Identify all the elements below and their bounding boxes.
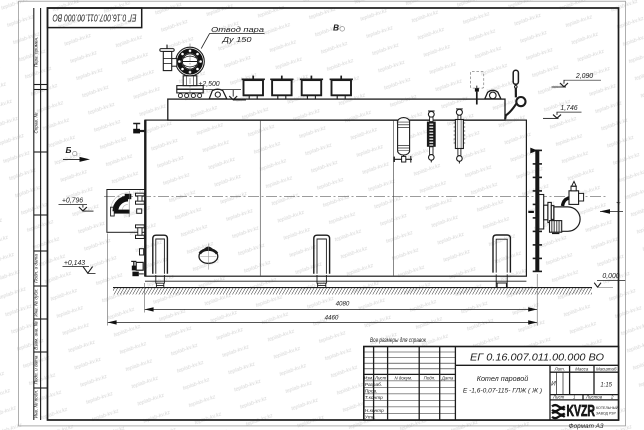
svg-text:В: В <box>333 22 339 32</box>
svg-text:1,746: 1,746 <box>560 105 577 112</box>
svg-text:Котел паровой: Котел паровой <box>477 374 529 383</box>
svg-text:Все размеры для справок: Все размеры для справок <box>370 338 427 344</box>
svg-text:Справ. №: Справ. № <box>34 113 39 134</box>
svg-text:1:15: 1:15 <box>600 383 612 389</box>
svg-text:Лист: Лист <box>552 395 565 400</box>
svg-text:ЕГ 0.16.007.011.00.000 ВО: ЕГ 0.16.007.011.00.000 ВО <box>52 12 136 23</box>
svg-text:+2,500: +2,500 <box>198 81 219 88</box>
svg-text:Н.контр: Н.контр <box>365 408 384 414</box>
svg-text:КОТЕЛЬНЫЙ: КОТЕЛЬНЫЙ <box>596 406 619 410</box>
svg-text:Т.контр: Т.контр <box>365 395 383 401</box>
svg-text:Инв. № подл.: Инв. № подл. <box>34 390 39 419</box>
svg-text:Инв. № дубл.: Инв. № дубл. <box>34 288 39 316</box>
svg-text:ЗАВОД РЗР: ЗАВОД РЗР <box>596 412 616 416</box>
svg-text:Лист: Лист <box>374 376 387 381</box>
svg-text:4460: 4460 <box>325 315 339 322</box>
svg-text:Лит.: Лит. <box>554 367 565 372</box>
svg-text:2,090: 2,090 <box>575 73 593 80</box>
svg-text:Ду 150: Ду 150 <box>221 35 252 44</box>
svg-text:Разраб.: Разраб. <box>365 382 382 388</box>
svg-text:Листов: Листов <box>585 395 603 400</box>
svg-text:ЕГ 0.16.007.011.00.000 ВО: ЕГ 0.16.007.011.00.000 ВО <box>470 353 604 364</box>
svg-text:Б: Б <box>66 145 72 155</box>
svg-text:KVZR: KVZR <box>567 403 596 420</box>
svg-text:Е -1,6-0,07-115- ГЛЖ ( Ж ): Е -1,6-0,07-115- ГЛЖ ( Ж ) <box>463 388 542 395</box>
svg-text:Подп. и дата: Подп. и дата <box>34 355 39 384</box>
svg-text:+0,796: +0,796 <box>62 198 83 205</box>
svg-text:0,000: 0,000 <box>602 273 619 280</box>
svg-text:Масштаб: Масштаб <box>596 367 617 372</box>
svg-text:Формат А3: Формат А3 <box>569 423 604 430</box>
svg-text:И: И <box>551 381 556 388</box>
svg-text:4: 4 <box>617 202 623 205</box>
svg-text:Подп.: Подп. <box>424 376 436 381</box>
svg-text:Масса: Масса <box>575 367 589 372</box>
svg-text:Отвод пара: Отвод пара <box>211 25 264 34</box>
svg-text:Взам. инв. №: Взам. инв. № <box>34 321 39 349</box>
svg-text:Дата: Дата <box>441 376 454 381</box>
svg-text:Изм.: Изм. <box>364 376 373 381</box>
svg-text:2: 2 <box>610 395 614 400</box>
svg-text:Утв.: Утв. <box>365 414 376 420</box>
svg-text:+0,143: +0,143 <box>64 260 85 267</box>
svg-text:N докум.: N докум. <box>395 376 413 381</box>
svg-text:Пров.: Пров. <box>365 388 378 394</box>
svg-text:Перв. примен.: Перв. примен. <box>34 37 39 68</box>
svg-text:4080: 4080 <box>336 301 350 308</box>
svg-text:Подп. и дата: Подп. и дата <box>34 254 39 283</box>
